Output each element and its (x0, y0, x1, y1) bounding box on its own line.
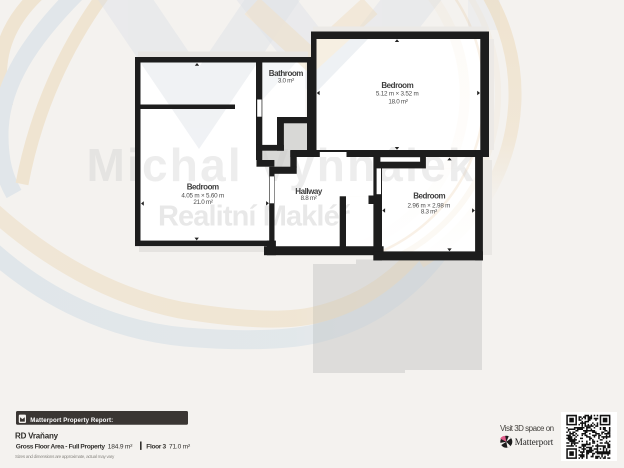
svg-text:21.0 m²: 21.0 m² (193, 199, 212, 206)
svg-text:3.0 m²: 3.0 m² (278, 77, 294, 84)
svg-text:8.3 m²: 8.3 m² (421, 209, 437, 216)
svg-text:Gross Floor Area - Full Proper: Gross Floor Area - Full Property (16, 443, 106, 450)
svg-text:Bedroom: Bedroom (381, 81, 413, 90)
svg-text:Bedroom: Bedroom (187, 182, 219, 191)
svg-text:Realitní Makléř: Realitní Makléř (158, 201, 351, 233)
svg-text:RD Vraňany: RD Vraňany (15, 432, 59, 441)
svg-text:Matterport Property Report:: Matterport Property Report: (30, 417, 113, 424)
svg-text:5.12 m × 3.52 m: 5.12 m × 3.52 m (376, 91, 419, 98)
svg-text:Floor 3: Floor 3 (146, 443, 166, 450)
svg-text:Matterport: Matterport (515, 437, 554, 447)
svg-text:184.9 m²: 184.9 m² (108, 443, 133, 450)
svg-text:18.0 m²: 18.0 m² (388, 98, 407, 105)
svg-text:Visit 3D space on: Visit 3D space on (500, 424, 554, 433)
svg-text:Sizes and dimensions are appro: Sizes and dimensions are approximate, ac… (15, 454, 115, 459)
svg-text:Bedroom: Bedroom (413, 192, 445, 201)
svg-text:8.8 m²: 8.8 m² (301, 195, 317, 202)
svg-text:71.0 m²: 71.0 m² (169, 443, 191, 450)
